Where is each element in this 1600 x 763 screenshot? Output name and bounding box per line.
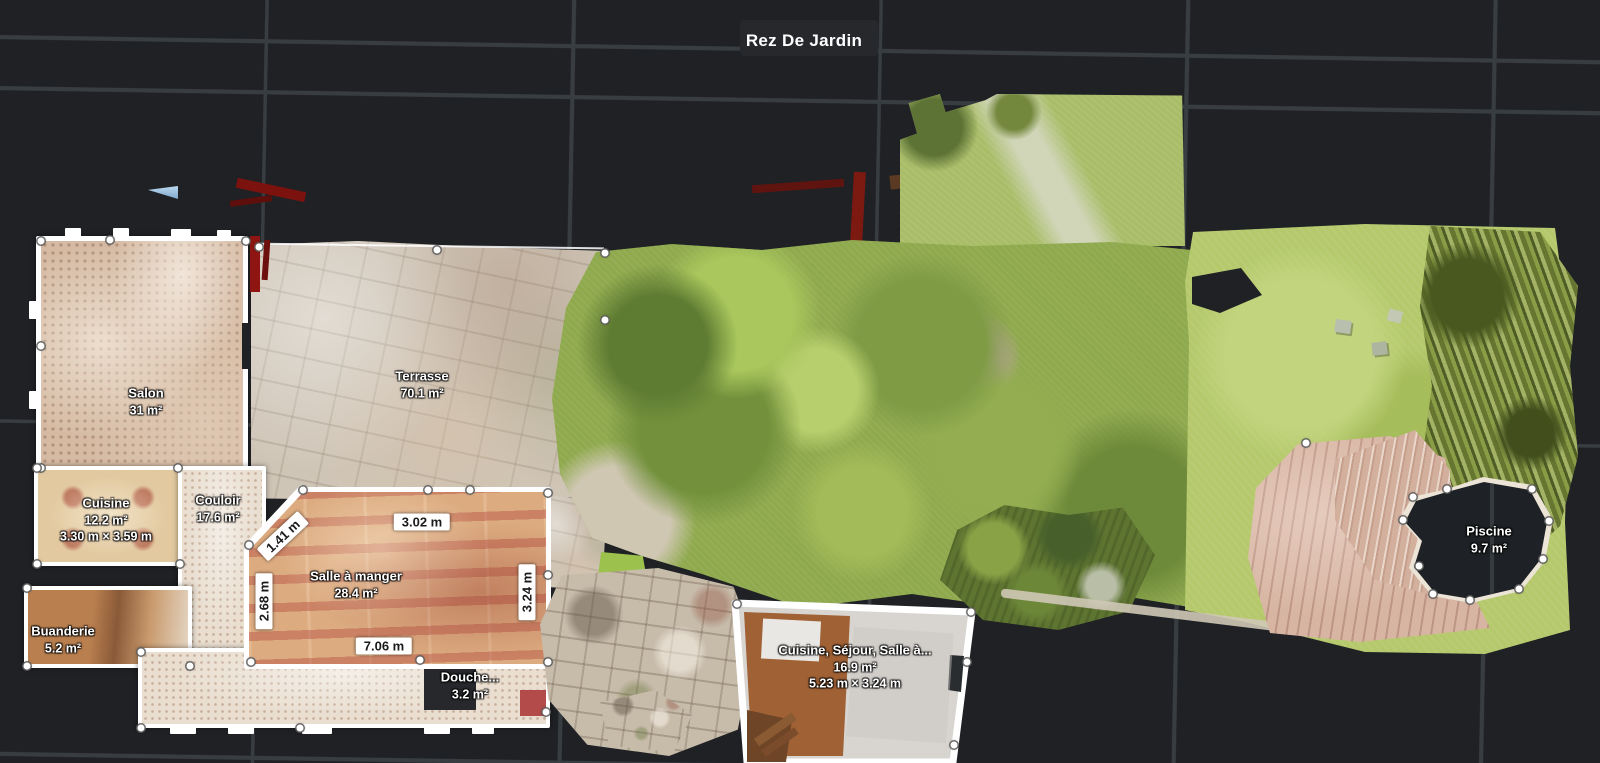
vertex-dot[interactable] [1540, 556, 1547, 563]
vertex-dot[interactable] [1529, 486, 1536, 493]
wall-notch [65, 228, 81, 238]
wall-notch [302, 724, 332, 734]
floorplan-viewport[interactable]: Rez De Jardin [0, 0, 1600, 763]
vertex-dot[interactable] [24, 585, 31, 592]
vertex-dot[interactable] [38, 238, 45, 245]
vertex-dot[interactable] [34, 465, 41, 472]
vertex-dot[interactable] [543, 709, 550, 716]
label-terrasse: Terrasse70.1 m² [395, 368, 448, 401]
vertex-dot[interactable] [177, 561, 184, 568]
vertex-dot[interactable] [175, 465, 182, 472]
vertex-dot[interactable] [24, 663, 31, 670]
vertex-dot[interactable] [1430, 591, 1437, 598]
wall-notch [472, 724, 494, 734]
measurement-chip: 7.06 m [356, 638, 412, 655]
garden-top-strip[interactable] [900, 94, 1185, 246]
vertex-dot[interactable] [545, 490, 552, 497]
vertex-dot[interactable] [297, 725, 304, 732]
label-couloir: Couloir17.6 m² [195, 492, 241, 525]
vertex-dot[interactable] [545, 659, 552, 666]
vertex-dot[interactable] [425, 487, 432, 494]
vertex-dot[interactable] [38, 343, 45, 350]
garden-furniture [1387, 308, 1403, 323]
floor-title: Rez De Jardin [746, 31, 862, 51]
vertex-dot[interactable] [256, 244, 263, 251]
label-buanderie: Buanderie5.2 m² [31, 623, 95, 656]
vertex-dot[interactable] [1416, 563, 1423, 570]
room-salon[interactable] [36, 236, 248, 472]
salon-doorway-gap [242, 323, 250, 369]
vertex-dot[interactable] [34, 561, 41, 568]
vertex-dot[interactable] [417, 657, 424, 664]
vertex-dot[interactable] [138, 649, 145, 656]
vertex-dot[interactable] [107, 237, 114, 244]
vertex-dot[interactable] [434, 247, 441, 254]
label-douche: Douche...3.2 m² [441, 669, 500, 702]
vertex-dot[interactable] [734, 601, 741, 608]
vertex-dot[interactable] [602, 250, 609, 257]
garden-furniture [1334, 319, 1352, 334]
measurement-chip: 3.02 m [394, 514, 450, 531]
vertex-dot[interactable] [602, 317, 609, 324]
vertex-dot[interactable] [1400, 517, 1407, 524]
vertex-dot[interactable] [545, 572, 552, 579]
vertex-dot[interactable] [1410, 494, 1417, 501]
vertex-dot[interactable] [246, 542, 253, 549]
label-cuisine: Cuisine12.2 m² 3.30 m × 3.59 m [60, 495, 152, 544]
wall-notch [171, 229, 191, 238]
label-salle-a-manger: Salle à manger28.4 m² [310, 568, 402, 601]
vertex-dot[interactable] [1546, 518, 1553, 525]
vertex-dot[interactable] [964, 659, 971, 666]
wall-notch [113, 228, 129, 238]
vertex-dot[interactable] [951, 742, 958, 749]
vertex-dot[interactable] [243, 238, 250, 245]
label-annexe: Cuisine, Séjour, Salle à...16.9 m² 5.23 … [778, 642, 931, 691]
vertex-dot[interactable] [138, 725, 145, 732]
wall-notch [29, 301, 38, 319]
vertex-dot[interactable] [248, 659, 255, 666]
vertex-dot[interactable] [467, 487, 474, 494]
wall-notch [228, 724, 254, 734]
wall-notch [424, 724, 450, 734]
measurement-chip: 2.68 m [256, 573, 273, 629]
wall-notch [217, 230, 231, 238]
measurement-chip: 3.24 m [519, 564, 536, 620]
vertex-dot[interactable] [187, 663, 194, 670]
label-piscine: Piscine9.7 m² [1466, 523, 1512, 556]
lawn-dark-notch [1192, 268, 1262, 313]
vertex-dot[interactable] [1467, 597, 1474, 604]
vertex-dot[interactable] [1444, 486, 1451, 493]
label-salon: Salon31 m² [128, 385, 163, 418]
vertex-dot[interactable] [1303, 440, 1310, 447]
vertex-dot[interactable] [1516, 586, 1523, 593]
wall-notch [29, 391, 38, 409]
vertex-dot[interactable] [300, 487, 307, 494]
wall-notch [170, 724, 196, 734]
garden-furniture [1371, 341, 1387, 355]
vertex-dot[interactable] [968, 609, 975, 616]
